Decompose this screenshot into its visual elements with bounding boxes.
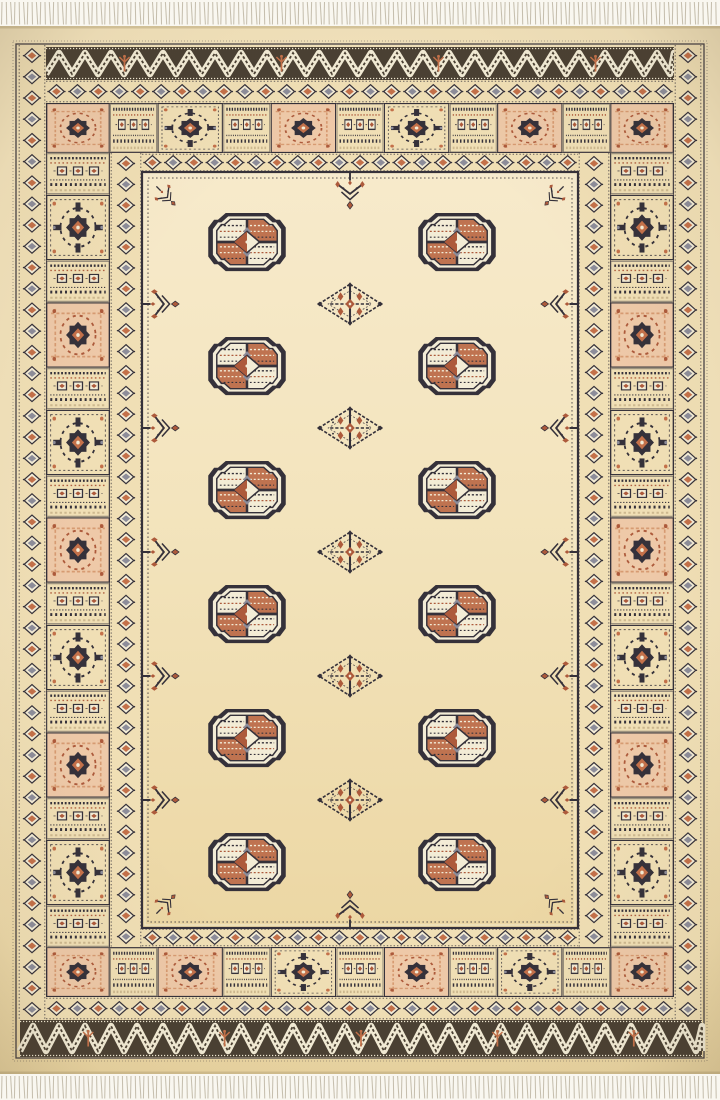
fringe-top: [0, 0, 720, 26]
rug-photo-stage: [0, 0, 720, 1100]
bokhara-rug-photo: [0, 0, 720, 1100]
photo-vignette: [0, 26, 720, 1074]
vignette-overlay: [0, 26, 720, 1074]
fringe-bottom: [0, 1074, 720, 1100]
